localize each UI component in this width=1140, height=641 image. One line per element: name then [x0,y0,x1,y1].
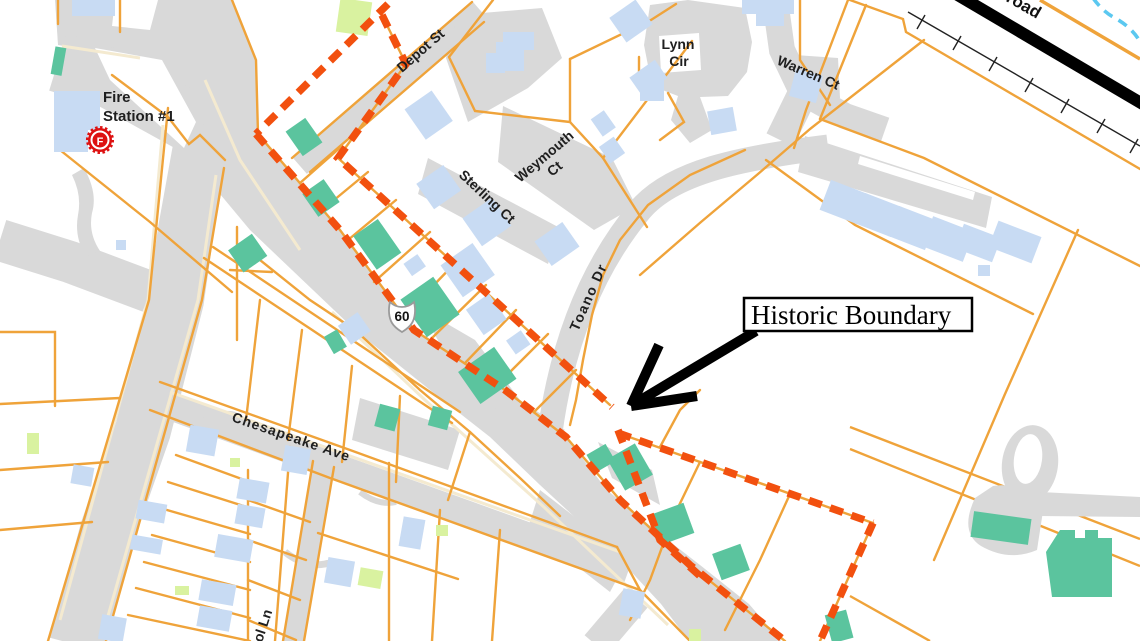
svg-text:Cir: Cir [669,53,689,69]
svg-text:Fire: Fire [103,89,131,106]
svg-text:F: F [97,136,104,148]
svg-text:Station #1: Station #1 [103,108,175,125]
svg-text:Lynn: Lynn [662,36,695,52]
svg-text:60: 60 [394,309,409,324]
svg-text:Historic Boundary: Historic Boundary [751,300,952,330]
